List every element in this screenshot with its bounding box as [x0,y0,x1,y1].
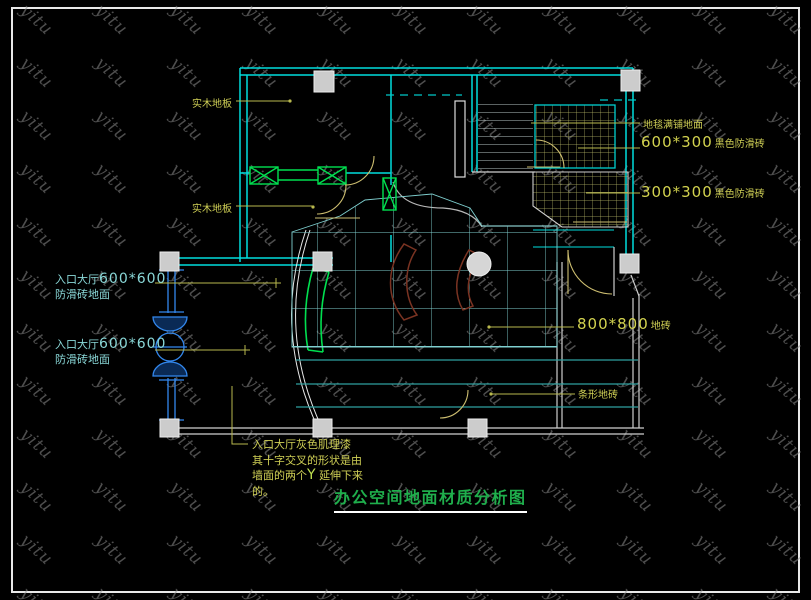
note-line3-post: 延伸下来 [319,469,363,482]
note-line2: 其十字交叉的形状是由 [252,453,363,469]
tile-300x300-size: 300*300 [641,183,713,201]
note-line3: 墙面的两个Y 延伸下来 [252,468,363,484]
dashed-lines [386,95,641,100]
label-entry-hall-1: 入口大厅600*600 防滑砖地面 [55,272,166,302]
note-line3-y: Y [307,467,316,483]
tile-room-300x300 [533,172,628,227]
column-square [314,71,334,92]
carpet-rows [478,103,533,172]
entry1-size: 600*600 [99,271,166,287]
label-entry-hall-2: 入口大厅600*600 防滑砖地面 [55,337,166,367]
column-square [621,70,640,91]
label-tile-800x800: 800*800地砖 [577,315,671,333]
tile-room-600x300 [535,105,615,168]
entry2-line2: 防滑砖地面 [55,352,166,367]
cad-sheet: yituyituyituyituyituyituyituyituyituyitu… [0,0,811,600]
column-round [467,252,491,276]
column-square [160,419,179,437]
tile-600x300-desc: 黑色防滑砖 [715,139,765,150]
column-square [468,419,487,437]
tile-800x800-size: 800*800 [577,315,649,333]
entry1-prefix: 入口大厅 [55,273,99,286]
drawing-title: 办公空间地面材质分析图 [334,484,527,513]
label-carpet: 地毯满铺地面 [643,116,703,131]
label-tile-300x300: 300*300黑色防滑砖 [641,183,765,201]
note-line3-pre: 墙面的两个 [252,469,307,482]
column-square [160,252,179,271]
tile-800x800-desc: 地砖 [651,321,671,332]
label-wood-floor-2: 实木地板 [192,200,232,215]
entry2-size: 600*600 [99,336,166,352]
column-square [313,419,332,437]
label-tile-600x300: 600*300黑色防滑砖 [641,133,765,151]
entry2-prefix: 入口大厅 [55,338,99,351]
column-square [620,254,639,273]
tile-300x300-desc: 黑色防滑砖 [715,189,765,200]
label-strip-tile: 条形地砖 [578,386,618,401]
tile-600x300-size: 600*300 [641,133,713,151]
note-line1: 入口大厅灰色肌理漆 [252,437,363,453]
entry1-line2: 防滑砖地面 [55,287,166,302]
label-wood-floor-1: 实木地板 [192,95,232,110]
column-square [313,252,332,271]
